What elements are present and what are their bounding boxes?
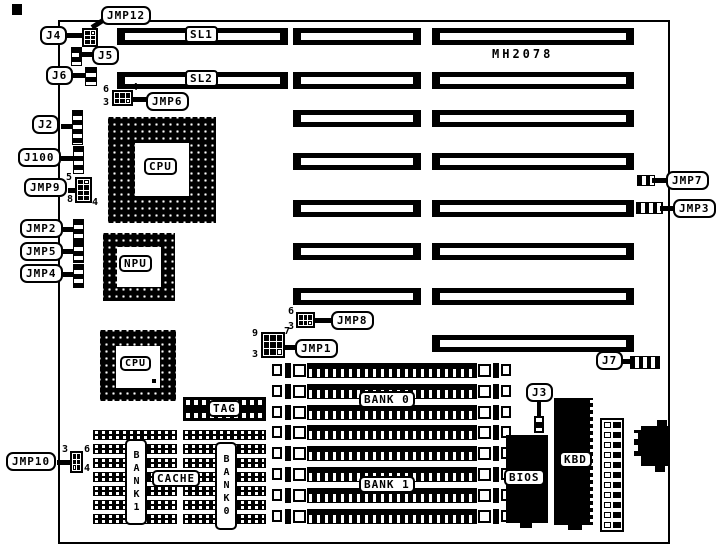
jmp9-pin5: 5 <box>66 172 72 183</box>
jmp6-pin4: 4 <box>132 82 138 93</box>
pin-cell <box>120 93 124 98</box>
jmp3-pointer-line <box>660 206 674 211</box>
simm-latch <box>293 426 306 439</box>
power-pin-square <box>604 472 611 478</box>
pin-cell <box>277 335 282 341</box>
simm-end-bar <box>285 446 291 461</box>
simm-end-bar <box>493 384 499 399</box>
callout-j4: J4 <box>40 26 67 45</box>
callout-jmp10: JMP10 <box>6 452 56 471</box>
slot-label-sl1: SL1 <box>185 26 218 43</box>
simm-latch <box>478 364 491 377</box>
j6-header <box>85 67 97 86</box>
simm-latch <box>478 489 491 502</box>
power-pin-square <box>604 482 611 488</box>
power-pin-square <box>604 512 611 518</box>
pin-cell <box>115 93 119 98</box>
pin-cell <box>78 196 83 200</box>
tag-label: TAG <box>208 400 241 417</box>
power-pin-row <box>602 480 622 490</box>
simm-latch <box>293 364 306 377</box>
j5-pointer-line <box>79 52 93 57</box>
keyboard-din-connector <box>655 464 665 472</box>
jmp8-pin6: 6 <box>288 306 294 317</box>
simm-socket-row <box>272 446 512 461</box>
pin-cell <box>126 99 130 104</box>
jmp2-pointer-line <box>63 227 74 232</box>
pin-cell <box>126 93 130 98</box>
callout-jmp9: JMP9 <box>24 178 67 197</box>
pin-cell <box>73 454 76 459</box>
simm-end-square <box>272 468 282 480</box>
pin-cell <box>308 321 312 326</box>
pin-cell <box>78 180 83 184</box>
isa-slot-segment: SL1 <box>117 28 288 45</box>
simm-latch <box>478 426 491 439</box>
jmp2-header <box>73 219 84 241</box>
pin-cell <box>264 335 269 341</box>
jmp9-pin4: 4 <box>92 197 98 208</box>
isa-slot-segment <box>293 243 421 260</box>
simm-end-square <box>272 510 282 522</box>
pin-cell <box>78 191 83 195</box>
j6-pointer-line <box>71 73 86 78</box>
power-pin-row <box>602 470 622 480</box>
npu-socket: NPU <box>103 233 175 301</box>
bios-chip-tab <box>520 522 532 528</box>
simm-end-square <box>272 489 282 501</box>
power-pin-row <box>602 450 622 460</box>
kbd-chip-tab <box>568 524 582 530</box>
cache-dip-socket <box>183 430 266 440</box>
pin-cell <box>264 342 269 348</box>
corner-marker <box>12 4 22 15</box>
power-pin <box>613 442 621 448</box>
pin-cell <box>304 315 308 320</box>
jmp5-header <box>73 241 84 263</box>
simm-latch <box>478 385 491 398</box>
power-pin <box>613 472 621 478</box>
board-model: MH2078 <box>492 47 553 61</box>
jmp7-pointer-line <box>652 178 667 183</box>
isa-slot-segment <box>293 72 421 89</box>
simm-end-bar <box>285 488 291 503</box>
power-pin-square <box>604 462 611 468</box>
cpu2-socket: CPU <box>100 330 176 401</box>
jmp10-pointer-line <box>57 460 71 465</box>
simm-end-square <box>272 426 282 438</box>
simm-contact-bar <box>307 509 477 524</box>
power-pin-square <box>604 522 611 528</box>
pin-cell <box>270 349 275 355</box>
simm-end-bar <box>285 425 291 440</box>
pin-cell <box>84 191 89 195</box>
isa-slot-segment <box>432 243 634 260</box>
cpu2-label: CPU <box>120 356 151 371</box>
jmp5-pointer-line <box>63 249 74 254</box>
pin-cell <box>91 31 96 35</box>
isa-slot-segment <box>432 28 634 45</box>
cpu-label: CPU <box>144 158 177 175</box>
power-pin-row <box>602 430 622 440</box>
power-pin-row <box>602 510 622 520</box>
j100-header <box>73 146 84 174</box>
power-pin-row <box>602 520 622 530</box>
callout-j7: J7 <box>596 351 623 370</box>
callout-jmp7: JMP7 <box>666 171 709 190</box>
j4-jmp12-block <box>82 28 98 47</box>
j7-header <box>630 356 660 369</box>
simm-latch <box>478 468 491 481</box>
cache-label: CACHE <box>152 470 200 487</box>
callout-jmp6: JMP6 <box>146 92 189 111</box>
din-notch <box>633 433 638 439</box>
callout-jmp12: JMP12 <box>101 6 151 25</box>
jmp6-pointer-line <box>132 97 147 102</box>
pin-cell <box>299 315 303 320</box>
isa-slot-segment <box>293 288 421 305</box>
pin-cell <box>85 31 90 35</box>
simm-latch <box>293 406 306 419</box>
pin-cell <box>73 465 76 470</box>
simm-end-bar <box>493 467 499 482</box>
power-pin <box>613 432 621 438</box>
jmp4-header <box>73 264 84 288</box>
jmp1-pin9: 9 <box>252 328 258 339</box>
callout-jmp5: JMP5 <box>20 242 63 261</box>
jmp1-block <box>261 332 285 358</box>
simm-latch <box>293 385 306 398</box>
simm-end-square <box>272 406 282 418</box>
simm-end-bar <box>285 363 291 378</box>
jmp9-block <box>75 177 92 203</box>
jmp9-pointer-line <box>68 188 76 193</box>
pin-cell <box>77 460 80 465</box>
jmp3-header <box>636 202 663 214</box>
simm-latch <box>293 447 306 460</box>
cache-bank1-label: BANK1 <box>125 439 147 525</box>
isa-slot-segment <box>432 200 634 217</box>
power-pin-row <box>602 420 622 430</box>
power-pin <box>613 422 621 428</box>
pin-cell <box>85 36 90 40</box>
pin-cell <box>91 40 96 44</box>
simm-latch <box>293 489 306 502</box>
power-pin-row <box>602 490 622 500</box>
power-pin-square <box>604 422 611 428</box>
pin1-marker <box>152 379 156 383</box>
pin-cell <box>299 321 303 326</box>
isa-slot-segment <box>432 110 634 127</box>
pin-cell <box>73 460 76 465</box>
isa-slot-segment <box>293 110 421 127</box>
jmp8-block <box>296 312 315 328</box>
callout-jmp8: JMP8 <box>331 311 374 330</box>
pin-cell <box>264 349 269 355</box>
keyboard-din-connector <box>641 426 668 466</box>
jmp10-pin4: 4 <box>84 463 90 474</box>
jmp9-pin8: 8 <box>67 194 73 205</box>
power-pin-square <box>604 502 611 508</box>
kbd-label: KBD <box>559 451 592 468</box>
simm-end-square <box>272 385 282 397</box>
jmp4-pointer-line <box>63 272 74 277</box>
simm-latch <box>293 510 306 523</box>
simm-sockets <box>272 363 512 531</box>
j100-pointer-line <box>61 156 74 161</box>
pin-cell <box>91 36 96 40</box>
callout-jmp1: JMP1 <box>295 339 338 358</box>
jmp1-pin7: 7 <box>284 326 290 337</box>
pin-cell <box>85 40 90 44</box>
pin-cell <box>277 342 282 348</box>
power-pin <box>613 522 621 528</box>
motherboard-diagram: MH2078 SL1 SL2 CPU NPU CPU TAG BANK1 BAN… <box>0 0 724 546</box>
simm-end-bar <box>493 446 499 461</box>
jmp6-block <box>112 90 133 106</box>
keyboard-din-connector <box>657 420 667 428</box>
pin-cell <box>120 99 124 104</box>
jmp10-pin6: 6 <box>84 444 90 455</box>
power-pin <box>613 512 621 518</box>
simm-end-bar <box>285 405 291 420</box>
pin-cell <box>78 185 83 189</box>
simm-end-square <box>272 447 282 459</box>
pin-cell <box>77 465 80 470</box>
din-notch <box>633 445 638 451</box>
simm-end-bar <box>493 405 499 420</box>
pin-cell <box>277 349 282 355</box>
jmp6-pin3: 3 <box>103 97 109 108</box>
simm-end-bar <box>493 488 499 503</box>
callout-j5: J5 <box>92 46 119 65</box>
isa-slot-segment <box>432 153 634 170</box>
pin-cell <box>84 196 89 200</box>
pin-cell <box>270 335 275 341</box>
j3-jumper <box>534 416 544 433</box>
simm-end-bar <box>285 509 291 524</box>
isa-slot-segment: SL2 <box>117 72 288 89</box>
power-pin-row <box>602 500 622 510</box>
slot-label-sl2: SL2 <box>185 70 218 87</box>
simm-latch <box>478 447 491 460</box>
simm-latch <box>478 406 491 419</box>
simm-socket-row <box>272 363 512 378</box>
simm-contact-bar <box>307 446 477 461</box>
power-pin-row <box>602 440 622 450</box>
power-pin-square <box>604 442 611 448</box>
bank1-label: BANK 1 <box>359 476 415 493</box>
isa-slot-segment <box>293 200 421 217</box>
power-pin <box>613 482 621 488</box>
power-pin-square <box>604 452 611 458</box>
callout-jmp2: JMP2 <box>20 219 63 238</box>
isa-slot-segment <box>432 335 634 352</box>
power-pin-row <box>602 460 622 470</box>
simm-contact-bar <box>307 363 477 378</box>
pin-cell <box>304 321 308 326</box>
pin-cell <box>115 99 119 104</box>
cpu-socket: CPU <box>108 117 216 223</box>
pin-cell <box>270 342 275 348</box>
simm-end-square <box>501 406 511 418</box>
power-pin-square <box>604 432 611 438</box>
jmp10-pin3: 3 <box>62 444 68 455</box>
callout-jmp4: JMP4 <box>20 264 63 283</box>
j4-pointer-line <box>66 33 83 38</box>
isa-slot-segment <box>293 28 421 45</box>
power-connector <box>600 418 624 532</box>
power-pin <box>613 452 621 458</box>
power-pin-square <box>604 492 611 498</box>
callout-j2: J2 <box>32 115 59 134</box>
power-pin <box>613 502 621 508</box>
jmp10-block <box>70 451 83 473</box>
j2-pointer-line <box>61 124 73 129</box>
simm-end-bar <box>493 425 499 440</box>
bank0-label: BANK 0 <box>359 391 415 408</box>
pin-cell <box>84 185 89 189</box>
callout-jmp3: JMP3 <box>673 199 716 218</box>
simm-contact-bar <box>307 425 477 440</box>
jmp8-pointer-line <box>314 318 332 323</box>
simm-latch <box>293 468 306 481</box>
power-pin <box>613 492 621 498</box>
simm-socket-row <box>272 425 512 440</box>
simm-end-bar <box>285 467 291 482</box>
callout-j6: J6 <box>46 66 73 85</box>
simm-socket-row <box>272 509 512 524</box>
isa-slot-segment <box>432 288 634 305</box>
jmp6-pin6: 6 <box>103 84 109 95</box>
power-pin <box>613 462 621 468</box>
callout-j100: J100 <box>18 148 61 167</box>
pin-cell <box>84 180 89 184</box>
isa-slot-segment <box>432 72 634 89</box>
simm-end-bar <box>285 384 291 399</box>
simm-end-bar <box>493 363 499 378</box>
isa-slot-segment <box>293 153 421 170</box>
jmp1-pin3: 3 <box>252 349 258 360</box>
simm-end-square <box>501 385 511 397</box>
j2-header <box>72 110 83 145</box>
bios-label: BIOS <box>504 469 545 486</box>
simm-end-square <box>501 364 511 376</box>
cache-bank0-label: BANK0 <box>215 442 237 530</box>
simm-end-bar <box>493 509 499 524</box>
npu-label: NPU <box>119 255 152 272</box>
simm-end-square <box>272 364 282 376</box>
pin-cell <box>308 315 312 320</box>
simm-latch <box>478 510 491 523</box>
pin-cell <box>77 454 80 459</box>
callout-j3: J3 <box>526 383 553 402</box>
